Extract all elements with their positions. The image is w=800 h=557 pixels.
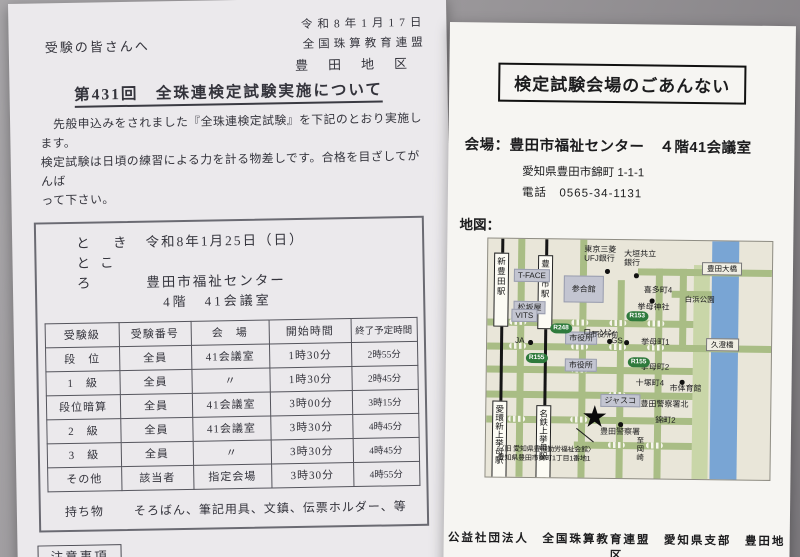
route-badge: R248: [550, 323, 572, 333]
where-room: 4階 41会議室: [163, 288, 417, 312]
where-value: 豊田市福祉センター: [146, 272, 286, 289]
organization-name: 全国珠算教育連盟: [295, 33, 427, 55]
exam-cell: 1時30分: [269, 366, 351, 391]
building-vits: VITS: [511, 309, 537, 323]
bridge-kyucho: 久澄橋: [706, 338, 739, 351]
col-header: 受験番号: [119, 321, 191, 346]
venue-phone: 電話 0565-34-1131: [522, 184, 794, 203]
when-value: 令和8年1月25日（日）: [145, 231, 304, 249]
exam-cell: 全員: [119, 345, 191, 370]
exam-cell: 全員: [120, 393, 192, 418]
building-cityhall-2: 市役所: [565, 358, 597, 372]
exam-cell: 〃: [191, 368, 269, 393]
district-name: 豊田地区: [295, 53, 427, 78]
crosswalk-marker: [508, 416, 525, 422]
area-koromo1: 挙母町1: [641, 337, 670, 347]
exam-cell: 3時30分: [270, 414, 352, 439]
exam-cell: 4時45分: [353, 437, 419, 462]
building-tface: T-FACE: [514, 269, 550, 283]
exam-cell: 〃: [193, 440, 271, 465]
station-meitetsu-uwagoromo: 名鉄上挙母駅: [535, 405, 550, 481]
exam-cell: 段位暗算: [46, 394, 120, 419]
poi-dot: [624, 340, 629, 345]
crosswalk-marker: [609, 320, 626, 326]
when-label: と き: [76, 232, 140, 253]
intro-line: 先般申込みをされました『全珠連検定試験』を下記のとおり実施します。: [40, 109, 425, 154]
exam-cell: 3時30分: [271, 462, 353, 487]
letter-head: 令和8年1月17日 全国珠算教育連盟 豊田地区 受験の皆さんへ: [8, 0, 447, 70]
where-line: ところ 豊田市福祉センター: [76, 248, 417, 294]
exam-cell: 全員: [120, 417, 192, 442]
area-totsuka4: 十塚町4: [636, 378, 665, 388]
poi-dot: [618, 422, 623, 427]
salutation: 受験の皆さんへ: [45, 36, 150, 57]
venue-star-marker: ★: [581, 403, 608, 433]
poi-ufj-bank: 東京三菱UFJ銀行: [584, 245, 626, 264]
issue-date: 令和8年1月17日: [294, 13, 426, 35]
intro-line: 検定試験は日頃の練習による力を計る物差しです。合格を目ざしてがんば: [41, 147, 426, 192]
area-cityhall-mae: 市役所前: [590, 332, 618, 340]
exam-cell: 3時15分: [352, 389, 418, 414]
poi-police-station-north: 豊田警察署北: [640, 399, 688, 409]
exam-cell: 段 位: [45, 346, 119, 371]
col-header: 受験級: [45, 322, 119, 347]
venue-line: 会場：豊田市福祉センター ４階41会議室: [464, 133, 794, 158]
poi-dot: [605, 269, 610, 274]
building-sangokan: 参合館: [564, 275, 604, 302]
poi-city-gym: 市体育館: [669, 384, 701, 394]
station-aikan-shin-uwagoromo: 愛環新上挙母駅: [491, 401, 506, 481]
exam-cell: 41会議室: [192, 416, 270, 441]
crosswalk-marker: [646, 442, 663, 448]
station-toyotashi: 豊田市駅: [537, 255, 552, 329]
notes-section: 注意事項 ＊ 開始待ち時間等はロビーにて静かにお待ち下さい。 ＊ 受験票を忘れな…: [35, 538, 441, 557]
exam-cell: 指定会場: [193, 464, 271, 489]
where-label: ところ: [76, 253, 141, 295]
notes-title: 注意事項: [37, 544, 121, 557]
exam-cell: 1 級: [45, 370, 119, 395]
exam-cell: 3時00分: [270, 390, 352, 415]
belongings-value: そろばん、筆記用具、文鎮、伝票ホルダー、等: [134, 499, 407, 518]
exam-cell: 1時30分: [269, 342, 351, 367]
venue-map: 新豊田駅 豊田市駅 愛環新上挙母駅 名鉄上挙母駅 T-FACE 松坂屋 参合館 …: [484, 237, 773, 480]
area-kitamachi4: 喜多町4: [644, 285, 673, 295]
intro-paragraph: 先般申込みをされました『全珠連検定試験』を下記のとおり実施します。 検定試験は日…: [40, 109, 426, 211]
route-badge: R153: [626, 311, 648, 321]
poi-dot: [528, 340, 533, 345]
area-shirahama-park: 白浜公園: [685, 296, 715, 305]
venue-guide-page: 検定試験会場のごあんない 会場：豊田市福祉センター ４階41会議室 愛知県豊田市…: [443, 22, 796, 557]
river: [709, 241, 739, 479]
table-row: その他 該当者 指定会場 3時30分 4時55分: [47, 461, 419, 491]
col-header: 会 場: [191, 320, 269, 345]
exam-cell: 2時45分: [351, 365, 417, 390]
exam-cell: 2時55分: [351, 341, 417, 366]
exam-cell: その他: [47, 466, 121, 491]
area-nishiki2: 錦町2: [655, 416, 676, 425]
venue-address: 愛知県豊田市錦町 1-1-1: [522, 163, 794, 182]
poi-dot: [634, 273, 639, 278]
poi-ogaki-bank: 大垣共立銀行: [624, 249, 660, 268]
exam-cell: 3時30分: [271, 438, 353, 463]
notice-page: 令和8年1月17日 全国珠算教育連盟 豊田地区 受験の皆さんへ 第431回 全珠…: [8, 0, 456, 557]
photo-background: 令和8年1月17日 全国珠算教育連盟 豊田地区 受験の皆さんへ 第431回 全珠…: [0, 0, 800, 557]
crosswalk-marker: [647, 320, 664, 326]
route-badge: R155: [628, 357, 650, 367]
exam-cell: 全員: [121, 441, 193, 466]
exam-cell: 全員: [119, 369, 191, 394]
route-badge: R155: [526, 353, 548, 363]
venue-note-line2: 愛知県豊田市錦町1丁目1番地1: [498, 454, 648, 465]
exam-cell: 3 級: [47, 442, 121, 467]
station-shin-toyota: 新豊田駅: [493, 253, 508, 327]
exam-cell: 41会議室: [191, 344, 269, 369]
exam-cell: 4時45分: [352, 413, 418, 438]
belongings-line: 持ち物 そろばん、筆記用具、文鎮、伝票ホルダー、等: [65, 497, 421, 520]
road: [679, 269, 687, 349]
venue-note: 〈旧 愛知県豊田勤労福祉会館〉 愛知県豊田市錦町1丁目1番地1: [498, 445, 648, 466]
publisher-footer: 公益社団法人 全国珠算教育連盟 愛知県支部 豊田地区: [443, 529, 789, 557]
crosswalk-marker: [571, 320, 588, 326]
exam-cell: 該当者: [121, 465, 193, 490]
bridge-toyota-ohashi: 豊田大橋: [702, 262, 742, 275]
exam-schedule-table: 受験級 受験番号 会 場 開始時間 終了予定時間 段 位 全員 41会議室 1時…: [44, 317, 420, 492]
schedule-box: と き 令和8年1月25日（日） ところ 豊田市福祉センター 4階 41会議室 …: [34, 215, 429, 532]
exam-cell: 2 級: [46, 418, 120, 443]
col-header: 開始時間: [269, 318, 351, 343]
exam-cell: 4時55分: [353, 461, 419, 486]
belongings-label: 持ち物: [65, 504, 104, 519]
notice-title: 第431回 全珠連検定試験実施について: [9, 76, 447, 106]
exam-cell: 41会議室: [192, 392, 270, 417]
map-label: 地図：: [459, 213, 793, 237]
poi-ja: JA: [515, 336, 524, 345]
col-header: 終了予定時間: [351, 317, 417, 342]
guide-title: 検定試験会場のごあんない: [498, 63, 746, 105]
